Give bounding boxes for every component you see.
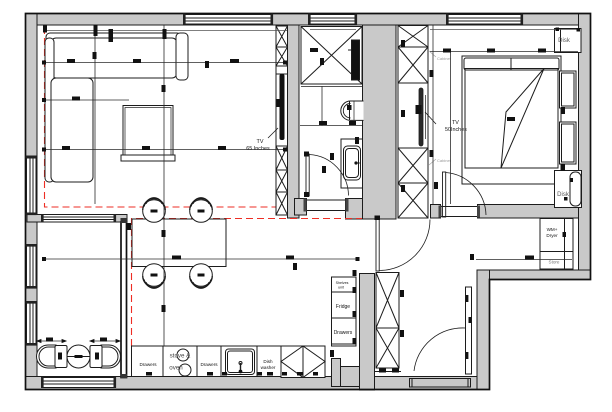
svg-text:oven: oven [169, 365, 183, 372]
svg-text:Dish: Dish [263, 359, 273, 364]
svg-text:stove &: stove & [170, 353, 192, 360]
svg-text:Dryer: Dryer [546, 233, 558, 238]
svg-text:65 Inches: 65 Inches [246, 146, 270, 152]
svg-text:Drawers: Drawers [139, 362, 157, 367]
svg-text:Drawers: Drawers [200, 362, 218, 367]
svg-text:50Inches: 50Inches [445, 127, 467, 133]
svg-text:Disk: Disk [557, 192, 570, 198]
svg-text:unit: unit [338, 286, 344, 290]
svg-text:Cabinet: Cabinet [437, 56, 452, 61]
svg-text:Cabinet: Cabinet [437, 158, 452, 163]
svg-text:Fridge: Fridge [336, 304, 350, 310]
svg-text:TV: TV [452, 120, 459, 126]
svg-text:Shelves: Shelves [336, 281, 349, 285]
svg-text:WM+: WM+ [547, 227, 558, 232]
svg-text:TV: TV [257, 139, 264, 145]
svg-text:Drawers: Drawers [334, 330, 353, 336]
svg-text:Disk: Disk [558, 38, 571, 44]
svg-text:washer: washer [261, 365, 276, 370]
svg-text:Store: Store [549, 260, 560, 265]
